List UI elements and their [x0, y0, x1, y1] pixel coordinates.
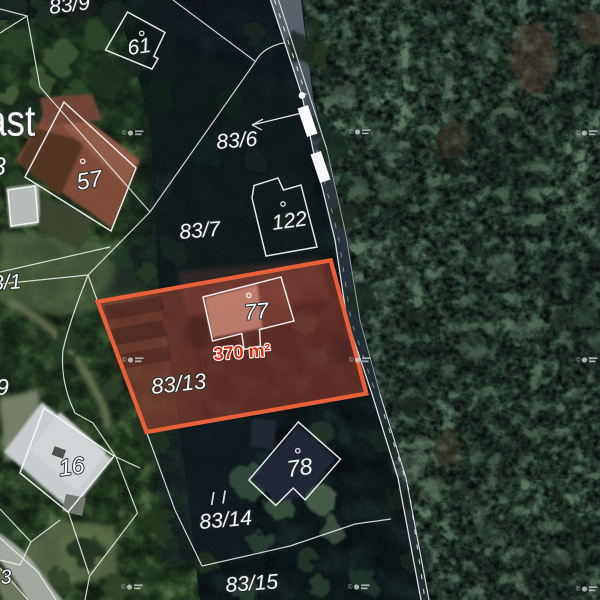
svg-text:©: © — [576, 586, 581, 593]
svg-text:©: © — [348, 584, 353, 591]
svg-text:©: © — [122, 130, 127, 137]
svg-text:3: 3 — [0, 566, 13, 589]
svg-text:122: 122 — [270, 207, 308, 235]
svg-text:ast: ast — [0, 95, 35, 145]
svg-text:©: © — [122, 357, 127, 364]
svg-text:83/14: 83/14 — [198, 506, 252, 533]
svg-text:61: 61 — [126, 34, 152, 60]
svg-text:370 m²: 370 m² — [213, 340, 271, 364]
svg-text:78: 78 — [285, 453, 314, 482]
svg-text:©: © — [349, 357, 354, 364]
svg-text:83/15: 83/15 — [225, 570, 279, 597]
svg-text:©: © — [349, 129, 354, 136]
svg-text:9: 9 — [0, 374, 9, 400]
svg-text:77: 77 — [243, 297, 271, 325]
svg-text:©: © — [576, 357, 581, 364]
svg-text:©: © — [121, 584, 126, 591]
svg-text:3: 3 — [0, 153, 6, 181]
svg-text:83/6: 83/6 — [215, 127, 258, 154]
svg-text:©: © — [576, 130, 581, 137]
svg-text:16: 16 — [57, 452, 86, 481]
svg-text:83/1: 83/1 — [0, 270, 22, 296]
svg-text:83/7: 83/7 — [178, 217, 222, 244]
